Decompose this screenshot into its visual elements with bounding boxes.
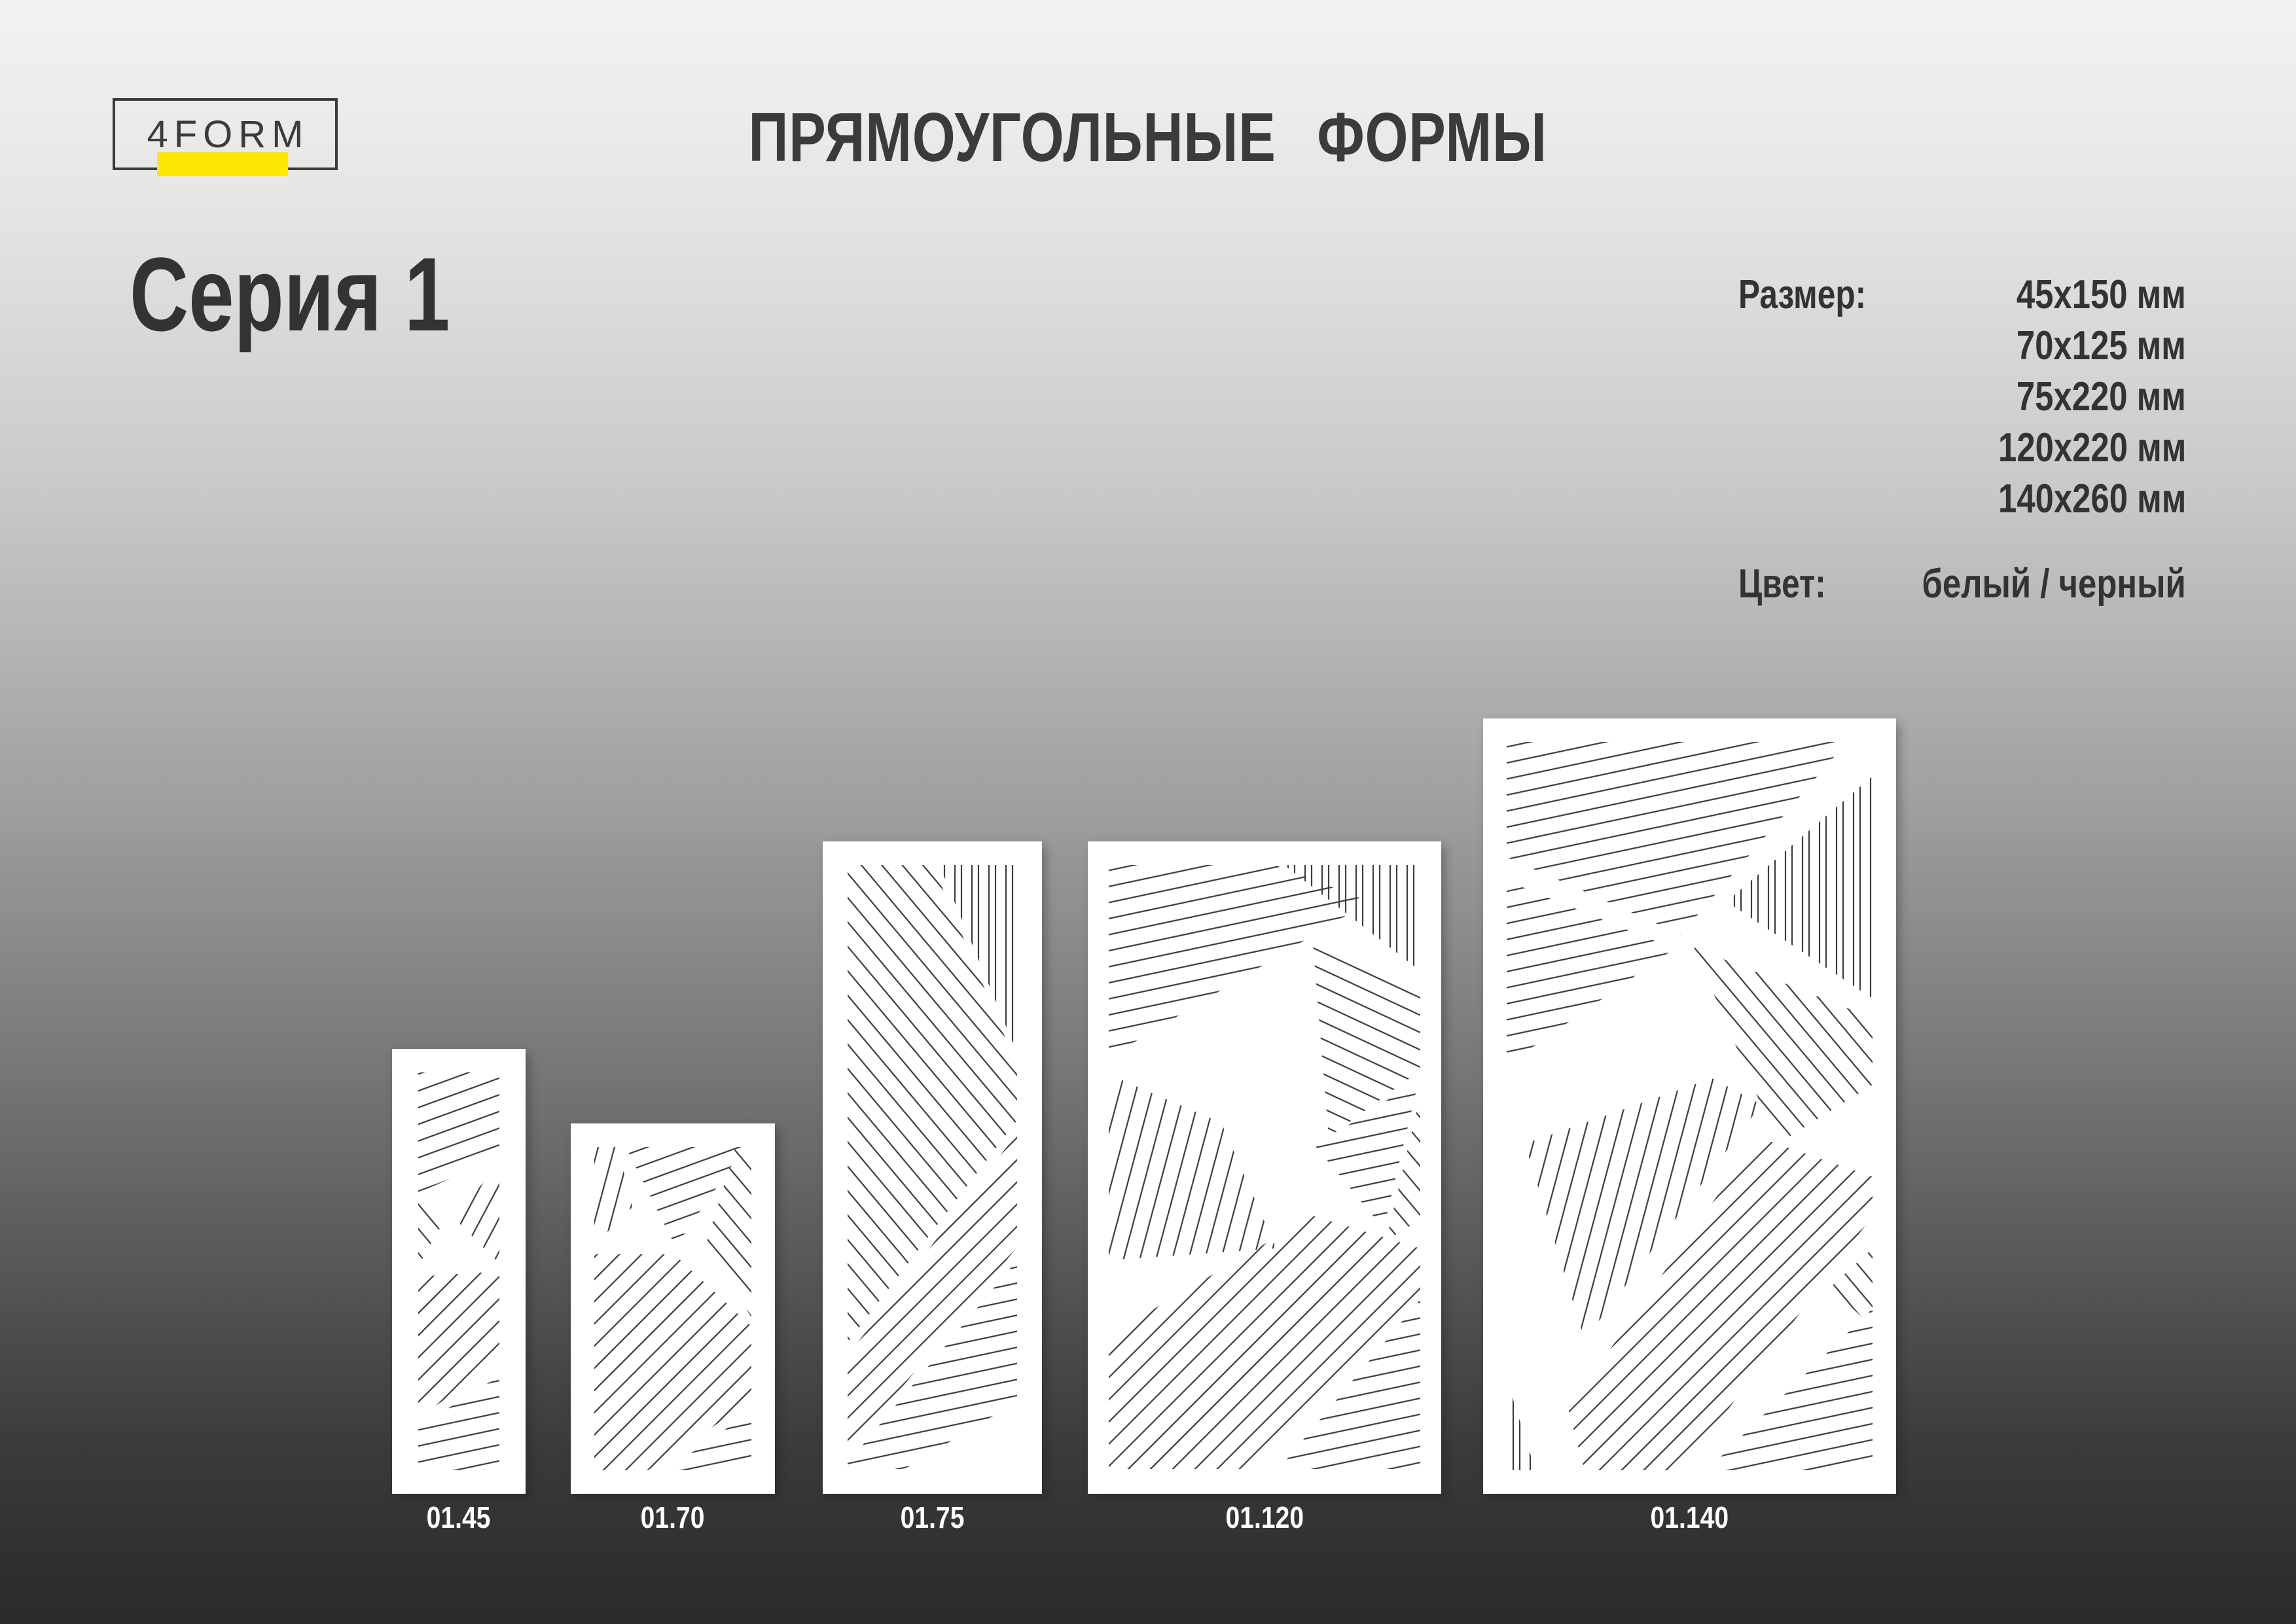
logo-accent-bar: [157, 152, 288, 176]
panel-code: 01.70: [571, 1501, 775, 1534]
panel-pattern: [823, 841, 1042, 1494]
panel-01-75: [823, 841, 1042, 1494]
panel-01-120: [1088, 841, 1441, 1494]
size-option: 45x150 мм: [1957, 270, 2186, 321]
size-option: 120x220 мм: [1957, 423, 2186, 474]
panel-01-45: [392, 1049, 526, 1494]
panel-code: 01.75: [823, 1501, 1042, 1534]
size-option: 140x260 мм: [1957, 474, 2186, 525]
panel-01-140: [1483, 718, 1896, 1494]
color-label: Цвет:: [1738, 559, 1848, 610]
panel-pattern: [1088, 841, 1441, 1494]
panel-pattern: [392, 1049, 526, 1494]
panel-pattern: [571, 1123, 775, 1494]
size-option: 70x125 мм: [1957, 321, 2186, 372]
panel-code: 01.45: [392, 1501, 526, 1534]
size-label: Размер:: [1738, 270, 1898, 321]
size-option: 75x220 мм: [1957, 372, 2186, 423]
page-title: ПРЯМОУГОЛЬНЫЕ ФОРМЫ: [0, 98, 2296, 177]
page-title-text: ПРЯМОУГОЛЬНЫЕ ФОРМЫ: [749, 98, 1547, 177]
panel-01-70: [571, 1123, 775, 1494]
panel-code: 01.140: [1483, 1501, 1896, 1534]
series-title: Серия 1: [130, 242, 540, 347]
catalog-page: 4FORM ПРЯМОУГОЛЬНЫЕ ФОРМЫ Серия 1 Размер…: [0, 0, 2296, 1624]
sizes-list: 45x150 мм 70x125 мм 75x220 мм 120x220 мм…: [1957, 270, 2186, 525]
series-title-text: Серия 1: [130, 242, 450, 347]
color-value: белый / черный: [1864, 559, 2186, 610]
panel-code: 01.120: [1088, 1501, 1441, 1534]
panel-pattern: [1483, 718, 1896, 1494]
